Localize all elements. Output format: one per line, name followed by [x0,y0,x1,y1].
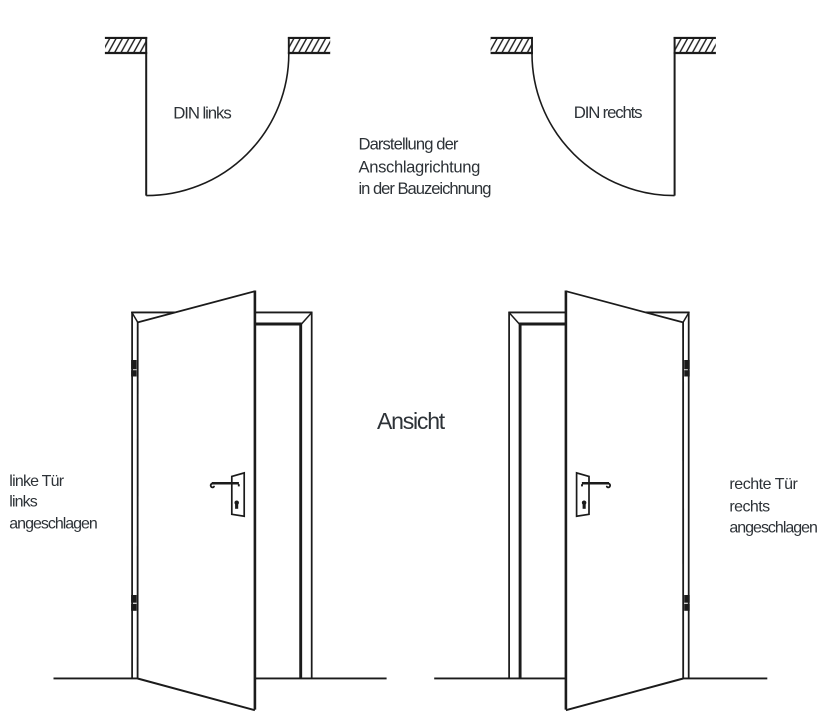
svg-text:rechts: rechts [729,499,770,516]
svg-text:DIN rechts: DIN rechts [574,103,642,122]
svg-text:Ansicht: Ansicht [377,408,446,434]
svg-text:links: links [9,494,37,511]
svg-text:angeschlagen: angeschlagen [729,520,817,537]
svg-text:angeschlagen: angeschlagen [9,516,97,533]
svg-text:rechte Tür: rechte Tür [729,476,798,493]
svg-text:DIN links: DIN links [173,103,231,122]
svg-text:Darstellung der: Darstellung der [359,135,459,154]
svg-text:in der Bauzeichnung: in der Bauzeichnung [359,179,492,198]
svg-text:Anschlagrichtung: Anschlagrichtung [359,157,481,176]
svg-text:linke Tür: linke Tür [9,473,64,490]
